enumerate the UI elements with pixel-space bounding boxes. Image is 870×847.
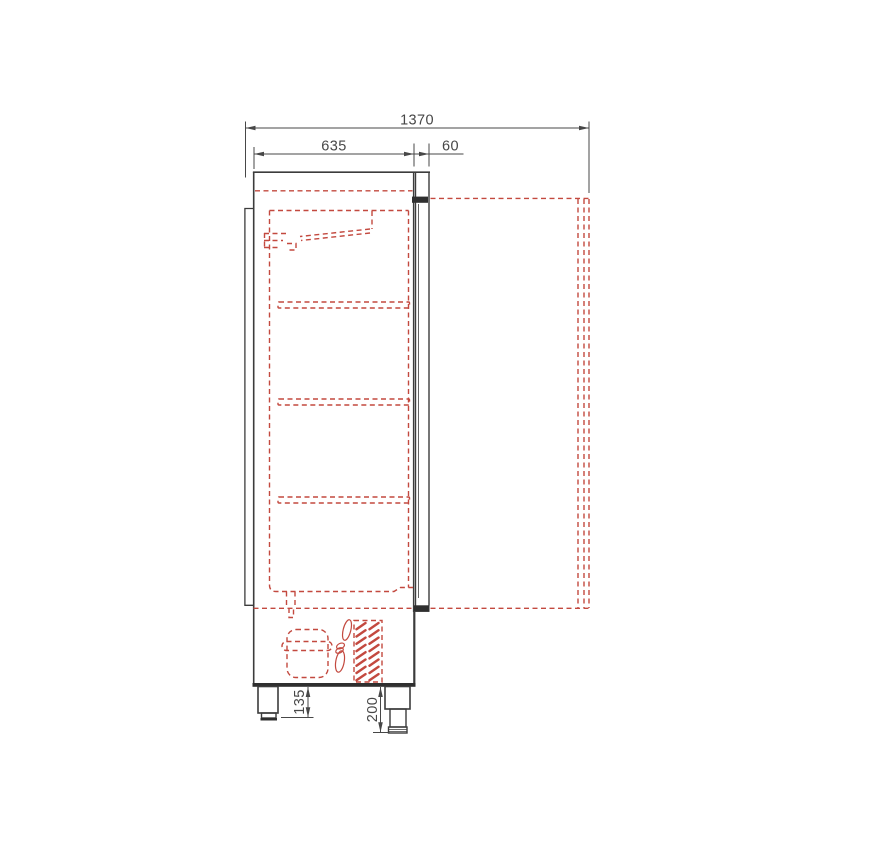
- compressor: [282, 630, 332, 678]
- arrow-down: [378, 722, 383, 732]
- condenser-hatch: [357, 623, 379, 680]
- fan: [334, 619, 353, 673]
- compressor-mount-band: [282, 642, 332, 651]
- drain-pipe: [287, 592, 296, 618]
- dimension-door-thickness: 60: [398, 139, 464, 167]
- dim-label-total-depth: 1370: [400, 113, 434, 129]
- front-leg-foot-threads: [389, 730, 408, 732]
- front-leg-body: [385, 687, 410, 710]
- rear-leg: [258, 687, 278, 721]
- liner-left-bottom: [270, 211, 414, 592]
- inner-liner-dashed: [270, 211, 414, 592]
- cabinet-outline: [253, 172, 431, 687]
- arrow-right: [419, 152, 429, 157]
- shelf-2: [278, 399, 410, 405]
- drain-tube: [289, 608, 294, 618]
- back-panel: [245, 209, 254, 606]
- door-open-outline: [431, 198, 590, 608]
- condenser-coil: [354, 621, 382, 683]
- front-leg-spindle: [390, 709, 406, 727]
- drip-tray-bracket: [264, 233, 296, 250]
- arrow-up: [378, 687, 383, 697]
- dim-label-rear-leg-height: 135: [292, 689, 308, 714]
- dim-label-front-leg-height: 200: [365, 697, 381, 722]
- rear-leg-base: [261, 718, 278, 721]
- shelf-3: [278, 497, 410, 503]
- compressor-body: [287, 630, 328, 678]
- arrow-left: [246, 126, 256, 131]
- duct-slope-upper: [300, 229, 370, 237]
- front-leg: [385, 687, 410, 734]
- dim-label-body-depth: 635: [321, 139, 346, 155]
- arrow-left: [254, 152, 264, 157]
- drain-funnel: [287, 592, 296, 608]
- dimension-total-depth: 1370: [246, 113, 590, 194]
- door-hinge-top: [412, 197, 428, 203]
- shelf-1: [278, 302, 410, 308]
- front-leg-foot: [389, 727, 408, 733]
- drawing-canvas: 1370 635 60: [0, 0, 870, 847]
- door-hinge-bottom: [414, 605, 430, 612]
- dimension-body-depth: 635: [254, 139, 414, 170]
- evaporator-duct: [264, 211, 372, 250]
- dimension-rear-leg-height: 135: [281, 687, 314, 718]
- technical-drawing: 1370 635 60: [0, 0, 870, 847]
- rear-leg-body: [258, 687, 278, 714]
- door-closed: [412, 172, 430, 612]
- duct-slope-lower: [301, 233, 370, 241]
- fan-blade-top: [341, 619, 353, 641]
- arrow-right: [579, 126, 589, 131]
- dim-label-door-thickness: 60: [442, 139, 459, 155]
